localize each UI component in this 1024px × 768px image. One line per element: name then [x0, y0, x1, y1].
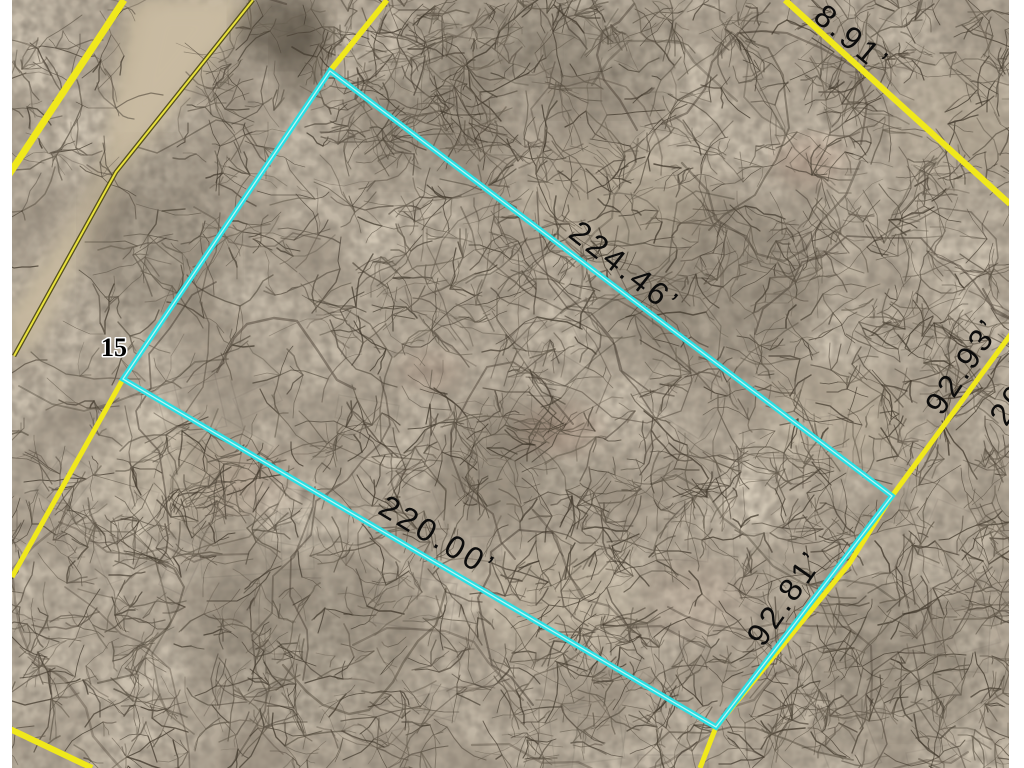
svg-text:15: 15 — [101, 333, 127, 362]
